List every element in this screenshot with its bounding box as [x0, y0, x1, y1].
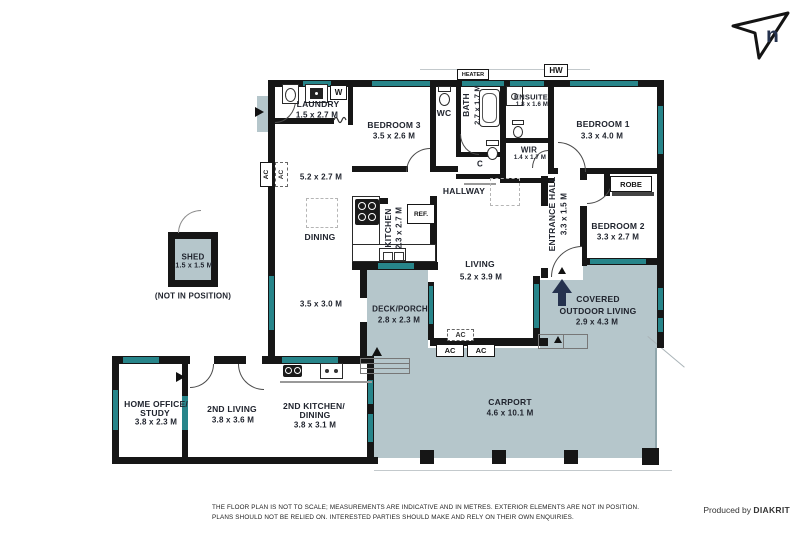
window	[368, 380, 373, 404]
room-dims-carport: 4.6 x 10.1 M	[487, 409, 534, 418]
room-label-second-living: 2ND LIVING	[207, 404, 257, 414]
shed-door-arc	[178, 210, 201, 233]
toilet-icon	[512, 120, 524, 125]
window	[123, 357, 159, 363]
room-label-covered-outdoor: COVERED	[576, 294, 619, 304]
window	[429, 286, 433, 324]
room-dims-bedroom2: 3.3 x 2.7 M	[597, 233, 639, 242]
entry-arrow-icon	[176, 372, 185, 382]
hot-water-box: HW	[544, 64, 568, 77]
entry-arrow-icon	[554, 336, 562, 343]
carport-post	[642, 448, 659, 465]
wall-segment	[352, 166, 408, 172]
robe-shelf	[612, 192, 654, 196]
ac-unit-box: AC	[436, 344, 464, 357]
skylight	[490, 178, 520, 206]
room-dims-deck-porch: 2.8 x 2.3 M	[378, 316, 420, 325]
room-dims-bath: 2.7 x 1.7 M	[473, 85, 482, 125]
outdoor-steps	[538, 334, 588, 349]
room-label-closet: C	[477, 160, 483, 169]
credit-prefix: Produced by	[703, 505, 751, 515]
ac-label: AC	[455, 332, 465, 339]
washer-label: W	[335, 88, 343, 97]
ac-unit-box: AC	[447, 329, 474, 341]
wall-segment	[360, 270, 367, 298]
window	[658, 288, 663, 310]
deck-steps	[360, 358, 410, 374]
room-dims-second-living: 3.8 x 3.6 M	[212, 416, 254, 425]
toilet-icon	[487, 147, 498, 160]
robe-label: ROBE	[620, 180, 642, 189]
carport-post	[420, 450, 434, 464]
window	[590, 259, 646, 264]
window	[658, 106, 663, 154]
wall-segment	[548, 168, 558, 174]
toilet-icon	[439, 93, 450, 106]
room-label-second-kitchen: DINING	[300, 410, 331, 420]
window	[113, 390, 118, 430]
ac-unit-box: AC	[260, 162, 273, 187]
window	[462, 81, 504, 86]
floor-plan: W REF. HEATER HW AC AC AC AC AC ROBE LAU…	[0, 0, 800, 539]
heater-box: HEATER	[457, 69, 489, 80]
window	[372, 81, 430, 86]
entry-arrow-icon	[372, 347, 382, 356]
toilet-icon	[513, 126, 523, 138]
room-dims-second-kitchen: 3.8 x 3.1 M	[294, 421, 336, 430]
carport-post	[492, 450, 506, 464]
window	[368, 414, 373, 442]
deck-area	[367, 270, 428, 358]
wall-segment	[548, 87, 554, 172]
ac-unit-box: AC	[275, 162, 288, 187]
wall-segment	[506, 138, 552, 143]
carport-post	[564, 450, 578, 464]
main-entrance-arrow	[552, 279, 572, 293]
window	[378, 263, 414, 269]
stove-icon	[355, 199, 379, 225]
ac-label: AC	[445, 346, 456, 355]
room-dims-wir: 1.4 x 1.7 M	[514, 155, 546, 161]
room-dims-bedroom3: 3.5 x 2.6 M	[373, 132, 415, 141]
fridge-label: REF.	[414, 211, 428, 218]
window	[570, 81, 638, 86]
bench-line	[280, 381, 372, 383]
wall-segment	[584, 168, 664, 174]
room-dims-bedroom1: 3.3 x 4.0 M	[581, 132, 623, 141]
room-label-deck-porch: DECK/PORCH	[372, 305, 428, 314]
room-label-kitchen: KITCHEN	[383, 208, 393, 247]
bathtub-icon	[479, 89, 500, 127]
room-label-bedroom3: BEDROOM 3	[367, 120, 420, 130]
door-arc	[558, 142, 586, 172]
carport-outline	[374, 470, 672, 471]
door-arc	[238, 364, 264, 390]
room-label-carport: CARPORT	[488, 397, 531, 407]
room-label-covered-outdoor: OUTDOOR LIVING	[560, 306, 637, 316]
wall-segment	[214, 356, 246, 364]
kitchen-sink-icon	[379, 248, 406, 261]
wall-segment	[112, 457, 378, 464]
wall-segment	[541, 268, 548, 278]
room-label-bedroom1: BEDROOM 1	[576, 119, 629, 129]
washer-box: W	[330, 85, 347, 100]
room-dims-covered-outdoor: 2.9 x 4.3 M	[576, 318, 618, 327]
ac-label: AC	[278, 170, 285, 179]
room-dims-living: 5.2 x 3.9 M	[460, 273, 502, 282]
room-dims-laundry: 1.5 x 2.7 M	[296, 111, 338, 120]
window	[658, 318, 663, 332]
room-dims-kitchen: 2.3 x 2.7 M	[395, 207, 404, 249]
fridge-box: REF.	[407, 204, 435, 224]
hot-water-label: HW	[549, 66, 562, 75]
ac-unit-box: AC	[467, 344, 495, 357]
room-label-living: LIVING	[465, 259, 495, 269]
skylight	[306, 198, 338, 228]
carport-edge	[655, 348, 657, 458]
disclaimer-line-2: PLANS SHOULD NOT BE RELIED ON. INTERESTE…	[212, 514, 574, 521]
toilet-icon	[486, 140, 499, 146]
cooktop-icon	[283, 365, 302, 377]
ac-label: AC	[263, 170, 270, 179]
room-label-shed: SHED	[181, 253, 204, 262]
main-entrance-arrow-stem	[558, 293, 566, 306]
room-label-bedroom2: BEDROOM 2	[591, 221, 644, 231]
door-arc	[190, 364, 214, 388]
credit-brand: DIAKRIT	[753, 505, 790, 515]
room-dims-family-area: 3.5 x 3.0 M	[300, 300, 342, 309]
room-label-hallway: HALLWAY	[443, 186, 485, 196]
room-dims-shed: 1.5 x 1.5 M	[175, 263, 212, 270]
window	[269, 276, 274, 330]
producer-credit: Produced by DIAKRIT	[640, 505, 790, 515]
shed-note: (NOT IN POSITION)	[155, 292, 231, 301]
disclaimer-line-1: THE FLOOR PLAN IS NOT TO SCALE; MEASUREM…	[212, 504, 639, 511]
entry-arrow-icon	[255, 107, 264, 117]
room-label-dining: DINING	[305, 232, 336, 242]
room-dims-entrance-hall: 3.3 x 1.5 M	[560, 193, 569, 235]
toilet-icon	[438, 86, 451, 92]
door-arc	[406, 148, 430, 172]
room-dims-dining: 5.2 x 2.7 M	[300, 173, 342, 182]
room-label-bath: BATH	[461, 93, 471, 117]
room-label-ensuite: ENSUITE	[514, 93, 548, 102]
room-label-wc: WC	[437, 108, 452, 118]
wall-segment	[430, 87, 436, 172]
north-label: n	[766, 24, 779, 48]
room-label-entrance-hall: ENTRANCE HALL	[547, 177, 557, 252]
robe-box: ROBE	[610, 176, 652, 192]
room-dims-home-office: 3.8 x 2.3 M	[135, 418, 177, 427]
entry-arrow-icon	[558, 267, 566, 274]
room-label-wir: WIR	[521, 146, 537, 155]
wall-segment	[430, 166, 458, 172]
ac-label: AC	[476, 346, 487, 355]
sink-icon	[320, 363, 343, 379]
north-arrow-icon	[728, 8, 792, 62]
room-label-laundry: LAUNDRY	[297, 99, 340, 109]
wall-segment	[367, 362, 374, 464]
room-dims-ensuite: 1.8 x 1.6 M	[516, 102, 548, 108]
heater-label: HEATER	[462, 72, 484, 78]
wall-segment	[360, 322, 367, 360]
room-label-home-office: STUDY	[140, 408, 170, 418]
window	[534, 284, 539, 328]
